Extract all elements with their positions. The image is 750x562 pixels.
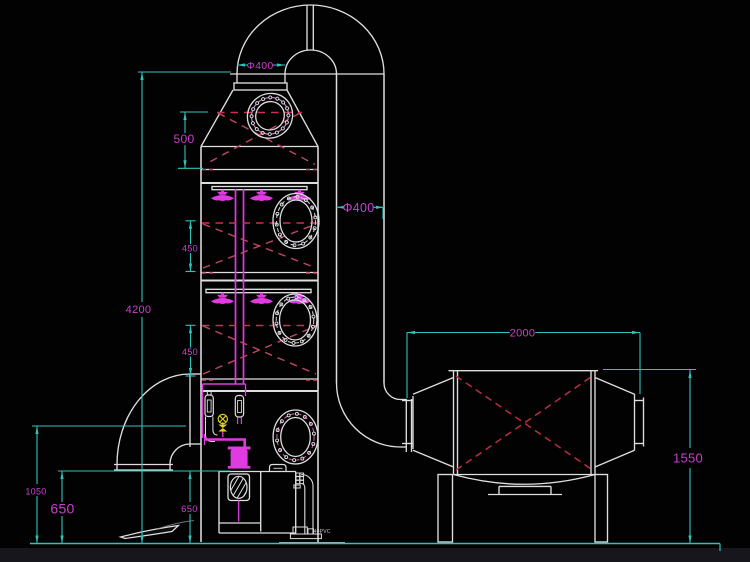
svg-text:650: 650: [50, 501, 74, 517]
svg-text:500: 500: [174, 132, 195, 146]
svg-text:Φ400: Φ400: [342, 201, 374, 215]
svg-text:4200: 4200: [126, 304, 152, 316]
svg-text:Φ400: Φ400: [246, 60, 273, 72]
svg-text:650: 650: [181, 504, 198, 515]
svg-text:2000: 2000: [510, 328, 536, 340]
svg-text:1550: 1550: [673, 451, 703, 466]
svg-text:450: 450: [182, 347, 198, 357]
svg-text:450: 450: [182, 244, 198, 254]
svg-text:40PVC: 40PVC: [314, 529, 331, 535]
svg-text:1050: 1050: [25, 487, 46, 497]
